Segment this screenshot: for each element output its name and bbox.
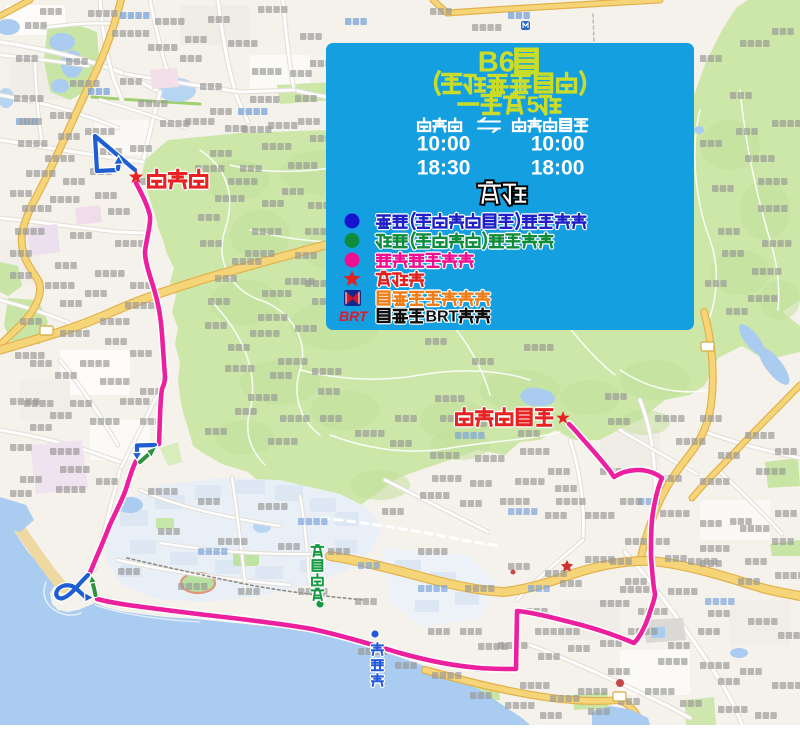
svg-text:10:00: 10:00 xyxy=(417,133,471,156)
svg-text:5: 5 xyxy=(527,91,540,117)
svg-text:B6: B6 xyxy=(478,46,515,78)
svg-text:BRT: BRT xyxy=(339,308,369,324)
svg-text:BRT: BRT xyxy=(426,308,459,325)
svg-text:18:00: 18:00 xyxy=(531,157,585,180)
svg-text:10:00: 10:00 xyxy=(531,133,585,156)
svg-text:18:30: 18:30 xyxy=(417,157,471,180)
